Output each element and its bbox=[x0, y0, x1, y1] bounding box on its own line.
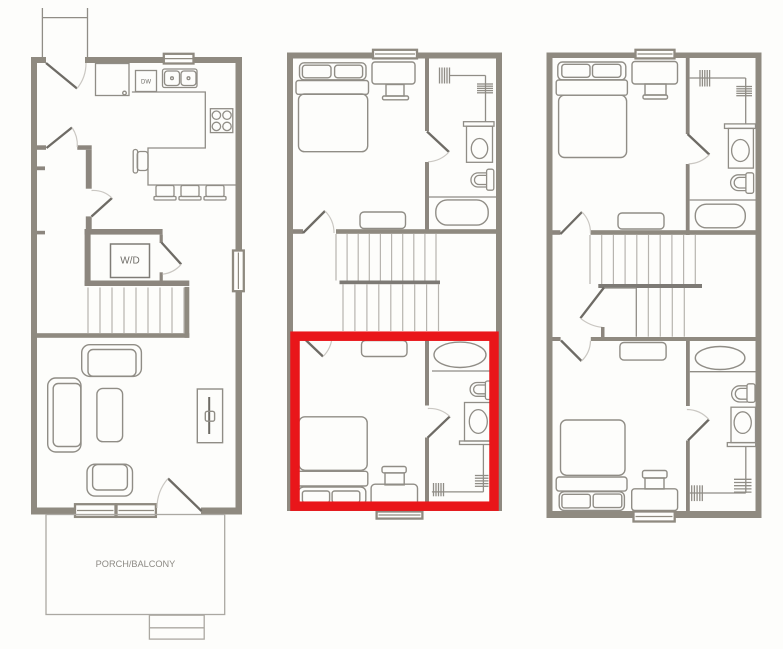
svg-text:W/D: W/D bbox=[120, 256, 139, 267]
svg-text:DW: DW bbox=[141, 80, 151, 86]
svg-text:PORCH/BALCONY: PORCH/BALCONY bbox=[96, 559, 176, 569]
